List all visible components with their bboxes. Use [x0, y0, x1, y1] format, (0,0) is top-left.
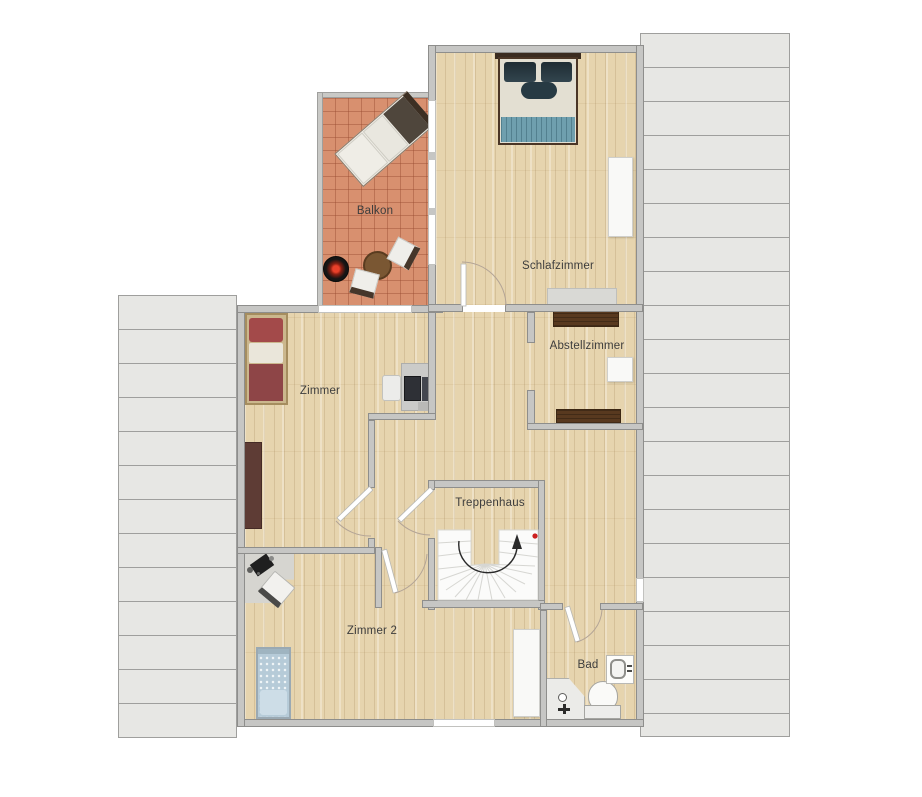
window — [428, 100, 436, 265]
wall-segment — [527, 312, 535, 343]
window-mullion — [428, 208, 436, 215]
wall-segment — [505, 304, 643, 312]
wall-segment — [368, 413, 436, 420]
room-label-zimmer: Zimmer — [300, 385, 340, 397]
blanket — [501, 117, 575, 142]
floorplan-canvas: Balkon Schlafzimmer Abstellzimmer Zimmer… — [0, 0, 922, 797]
window — [636, 578, 644, 602]
pillow — [260, 690, 287, 715]
storage-shelf — [553, 311, 619, 327]
desk-item — [257, 572, 260, 575]
pillow — [504, 62, 536, 82]
balcony-railing-top — [317, 92, 430, 98]
sink — [606, 655, 634, 684]
window-mullion — [428, 152, 436, 160]
wall-segment — [368, 420, 375, 488]
wall-segment — [527, 423, 643, 430]
sink-tap — [627, 665, 632, 667]
white-wardrobe — [513, 629, 540, 717]
single-bed-red — [245, 313, 288, 405]
wall-segment — [237, 305, 245, 727]
sideboard — [547, 288, 617, 305]
shower-drain — [563, 704, 566, 714]
blanket — [249, 364, 283, 401]
wall-segment — [540, 610, 547, 727]
pillow — [541, 62, 572, 82]
shower-faucet — [558, 693, 567, 702]
wall-segment — [428, 45, 643, 53]
room-label-balkon: Balkon — [357, 205, 393, 217]
storage-shelf — [556, 409, 621, 424]
room-label-schlafzimmer: Schlafzimmer — [522, 260, 594, 272]
sink-tap — [627, 670, 632, 672]
bed-footer — [258, 649, 289, 654]
wardrobe-dark — [243, 442, 262, 529]
monitor — [404, 376, 421, 401]
wall-segment — [428, 304, 463, 312]
window — [433, 719, 495, 727]
wall-segment — [428, 480, 435, 490]
wardrobe — [608, 157, 633, 237]
double-bed — [498, 57, 578, 145]
wall-segment — [600, 603, 643, 610]
wall-segment — [428, 312, 436, 420]
wall-segment — [636, 45, 644, 727]
room-label-zimmer2: Zimmer 2 — [347, 625, 397, 637]
window — [318, 305, 412, 313]
wall-segment — [540, 603, 563, 610]
sink-basin — [610, 659, 626, 679]
room-label-treppenhaus: Treppenhaus — [455, 497, 525, 509]
single-bed-blue — [256, 647, 291, 719]
toilet-tank — [584, 705, 621, 719]
wall-segment — [237, 547, 375, 554]
wall-segment — [375, 547, 382, 608]
room-label-bad: Bad — [577, 659, 598, 671]
pillow — [249, 318, 283, 342]
room-label-abstellzimmer: Abstellzimmer — [550, 340, 625, 352]
wall-segment — [428, 480, 545, 488]
roof-panels-left — [118, 295, 237, 738]
sheet — [249, 343, 283, 363]
pillow-roll — [521, 82, 557, 99]
roof-panels-right — [640, 33, 790, 737]
fire-bowl — [323, 256, 349, 282]
desk-item — [247, 567, 253, 573]
balcony-railing-left — [317, 92, 323, 307]
desk-item — [269, 556, 274, 561]
desk-chair — [382, 375, 401, 401]
wall-segment — [422, 600, 545, 608]
wall-segment — [538, 480, 545, 610]
storage-box — [607, 357, 633, 382]
